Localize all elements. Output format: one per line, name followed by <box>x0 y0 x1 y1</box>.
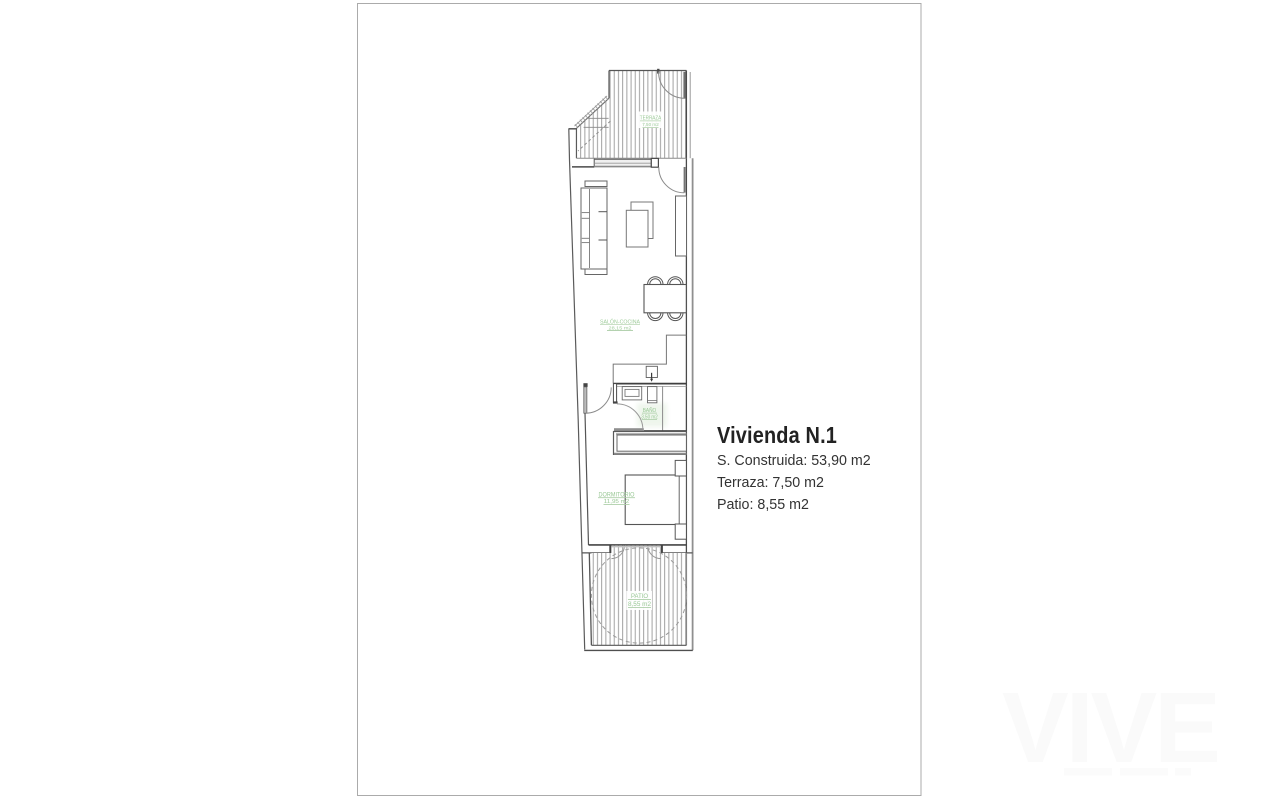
svg-text:VIVE: VIVE <box>1002 672 1218 784</box>
svg-text:8,55 m2: 8,55 m2 <box>628 602 652 608</box>
svg-text:PATIO: PATIO <box>631 593 648 600</box>
svg-text:7,50 m2: 7,50 m2 <box>642 122 659 127</box>
